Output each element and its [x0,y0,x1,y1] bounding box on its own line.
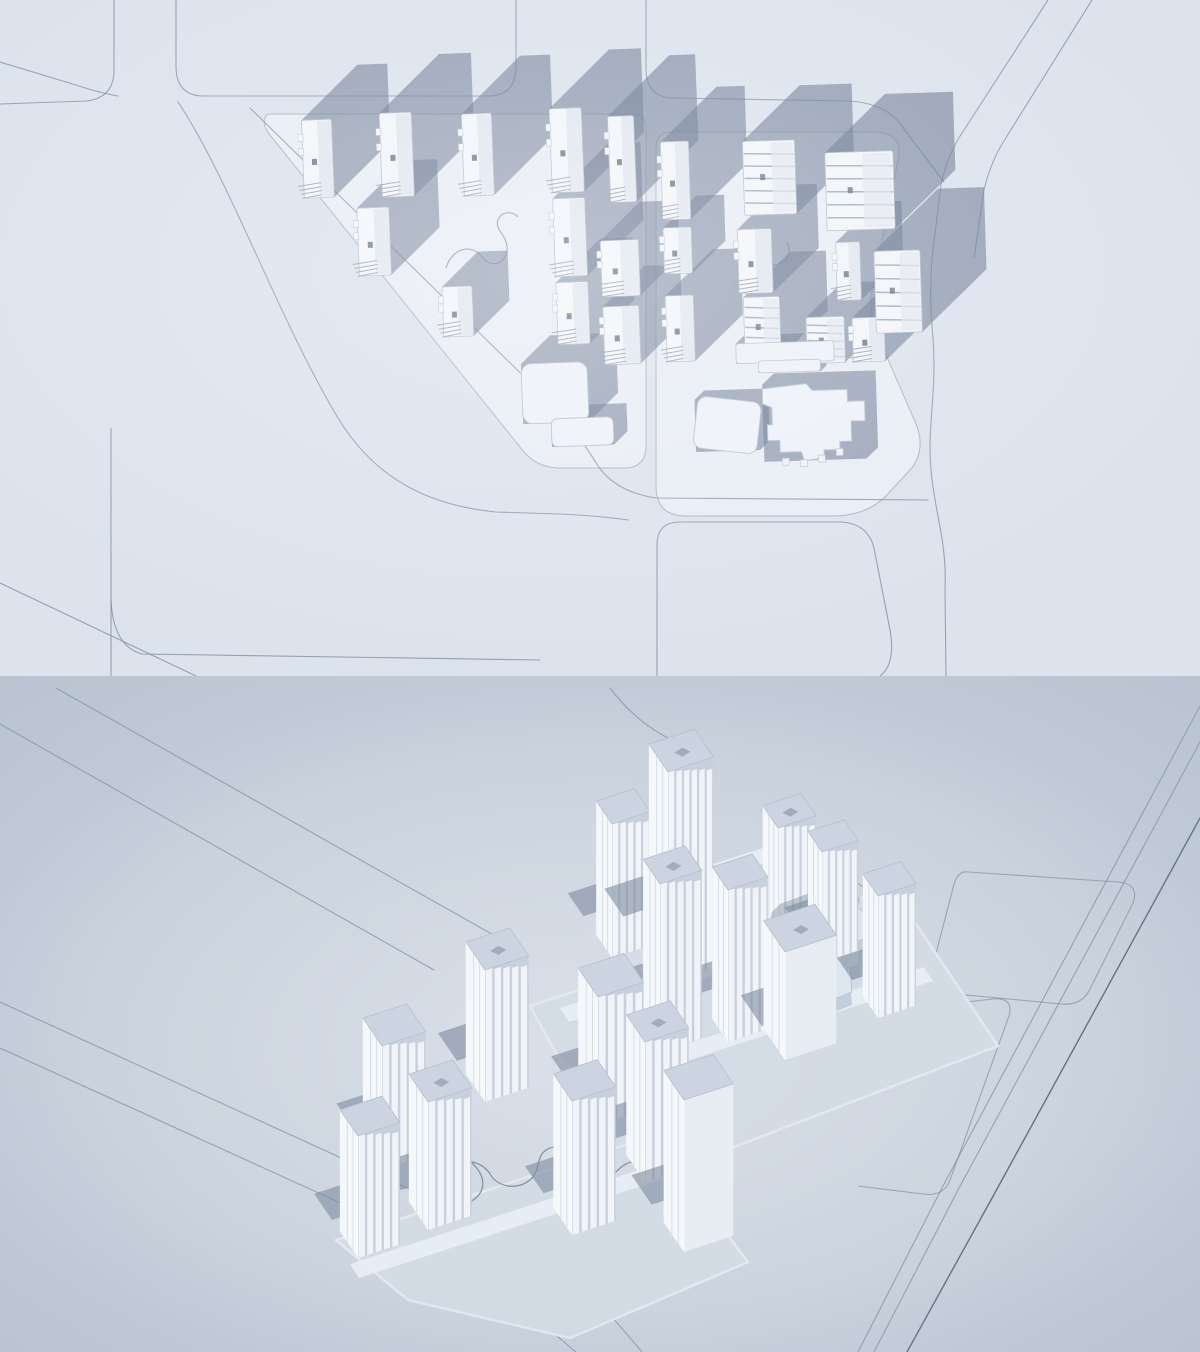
vignette-overlay [0,676,1200,1352]
aerial-plan-view-panel [0,0,1200,676]
light-glow-overlay [0,0,1200,676]
perspective-view-panel [0,676,1200,1352]
architectural-massing-render [0,0,1200,1352]
